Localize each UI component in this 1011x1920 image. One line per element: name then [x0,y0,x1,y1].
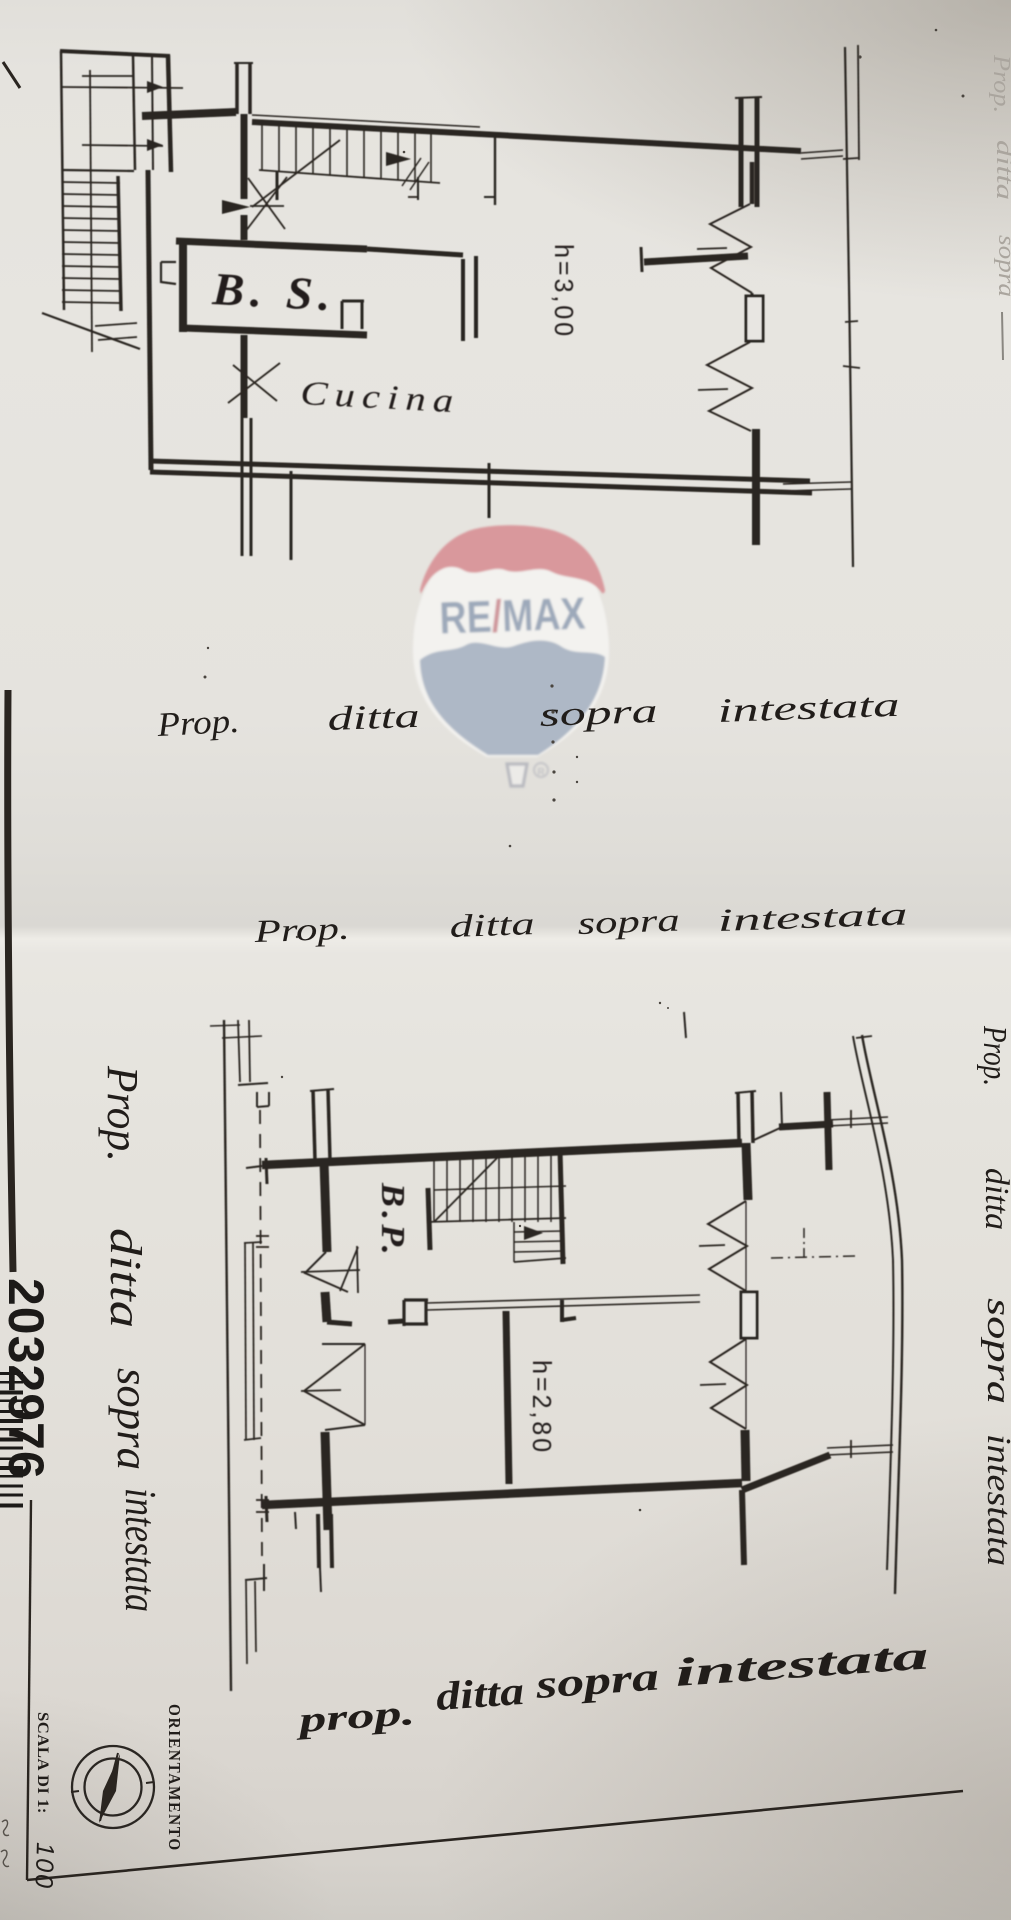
svg-text:intestata: intestata [980,1434,1011,1566]
svg-text:ORIENTAMENTO: ORIENTAMENTO [165,1704,184,1852]
svg-text:Prop.: Prop. [98,1065,147,1162]
svg-text:B.P.: B.P. [374,1182,411,1259]
svg-text:RE/MAX: RE/MAX [439,587,587,643]
svg-text:intestata: intestata [717,687,900,730]
svg-text:prop.: prop. [293,1692,416,1740]
svg-text:sopra: sopra [980,1298,1011,1404]
svg-text:sopra: sopra [539,693,658,734]
svg-text:ditta: ditta [434,1668,525,1719]
svg-text:Prop.: Prop. [976,1025,1011,1086]
svg-text:ditta: ditta [978,1168,1011,1230]
svg-text:intestata: intestata [116,1488,165,1612]
svg-text:sopra: sopra [993,235,1011,297]
svg-text:B. S.: B. S. [210,263,338,320]
svg-text:ditta: ditta [449,905,535,944]
svg-text:Cucina: Cucina [300,375,462,420]
svg-text:sopra: sopra [108,1368,157,1470]
svg-text:h=2,80: h=2,80 [527,1360,557,1455]
svg-text:h=3,00: h=3,00 [549,244,579,339]
svg-text:sopra: sopra [577,901,680,941]
svg-text:Prop.: Prop. [155,703,240,744]
svg-text:intestata: intestata [717,895,908,938]
svg-text:ditta: ditta [101,1228,150,1328]
svg-text:Prop.: Prop. [988,54,1011,113]
svg-text:ditta: ditta [327,698,420,738]
svg-text:100: 100 [29,1842,59,1891]
svg-text:sopra: sopra [533,1654,660,1708]
svg-text:ditta: ditta [991,140,1011,200]
svg-text:Prop.: Prop. [253,910,351,949]
svg-text:SCALA DI 1:: SCALA DI 1: [34,1712,51,1814]
svg-text:intestata: intestata [673,1632,930,1695]
svg-text:2032976: 2032976 [0,1278,54,1480]
svg-text:R: R [537,767,545,778]
